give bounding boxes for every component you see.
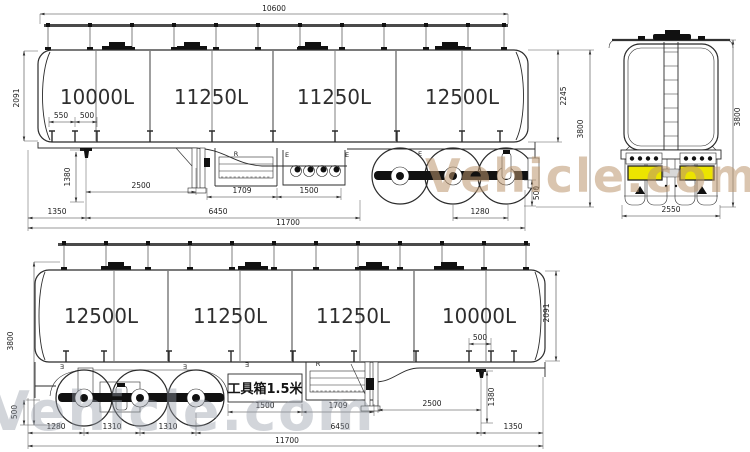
section-mark-e: E	[345, 151, 349, 159]
dim-rear-axle-span: 1280	[470, 207, 489, 216]
dim-tank-rear-height: 2245	[559, 86, 568, 105]
dim-valvebox-length: 1500	[299, 186, 318, 195]
dim-support-500: 500	[473, 333, 488, 342]
watermark-bottom: Vehicle.com	[0, 380, 375, 443]
kingpin	[80, 148, 92, 158]
toolbox	[215, 148, 277, 186]
dim-front-overhang: 1350	[47, 207, 66, 216]
valve-box	[283, 150, 345, 185]
dim-overall-length: 10600	[262, 4, 286, 13]
tanker-trailer-drawing: 10600 10000L 11250L 11250L 12500L 550 50…	[0, 0, 750, 452]
section-mark-e: Ǝ	[60, 363, 64, 371]
dim-wheelbase: 6450	[208, 207, 227, 216]
manhole-covers	[101, 262, 464, 270]
dim-kingpin-height: 1380	[63, 167, 72, 186]
manhole-covers	[102, 42, 465, 50]
dim-front-height: 2091	[542, 303, 551, 322]
dim-kingpin-height: 1380	[487, 387, 496, 406]
dim-kingpin-to-legs: 2500	[131, 181, 150, 190]
watermark-top: Vehicle.com	[425, 149, 750, 203]
section-mark-e: Ǝ	[183, 363, 187, 371]
dim-rear-width: 2550	[661, 205, 680, 214]
kingpin	[476, 369, 486, 378]
dim-total-length: 11700	[276, 218, 300, 227]
dim-front-overhang: 1350	[503, 422, 522, 431]
tank-cross-section	[624, 44, 718, 150]
compartment-volume: 11250L	[297, 85, 372, 109]
compartment-volume: 11250L	[193, 304, 268, 328]
dim-kingpin-to-legs: 2500	[422, 399, 441, 408]
compartment-volume: 11250L	[174, 85, 249, 109]
section-mark-r: R	[316, 360, 321, 368]
dim-front-height: 2091	[12, 88, 21, 107]
dim-support-500: 500	[80, 111, 95, 120]
section-mark-r: R	[234, 150, 239, 158]
compartment-volume: 11250L	[316, 304, 391, 328]
compartment-volume: 10000L	[60, 85, 135, 109]
section-mark-e: Ǝ	[245, 361, 249, 369]
dim-overall-height: 3800	[6, 331, 15, 350]
compartment-volume: 12500L	[425, 85, 500, 109]
section-mark-e: E	[285, 151, 289, 159]
dim-overall-height: 3800	[576, 119, 585, 138]
compartment-volume: 12500L	[64, 304, 139, 328]
dim-rear-height: 3800	[733, 107, 742, 126]
dim-support-550: 550	[54, 111, 69, 120]
landing-gear	[176, 148, 210, 193]
dim-toolbox-length: 1709	[232, 186, 251, 195]
compartment-volume: 10000L	[442, 304, 517, 328]
